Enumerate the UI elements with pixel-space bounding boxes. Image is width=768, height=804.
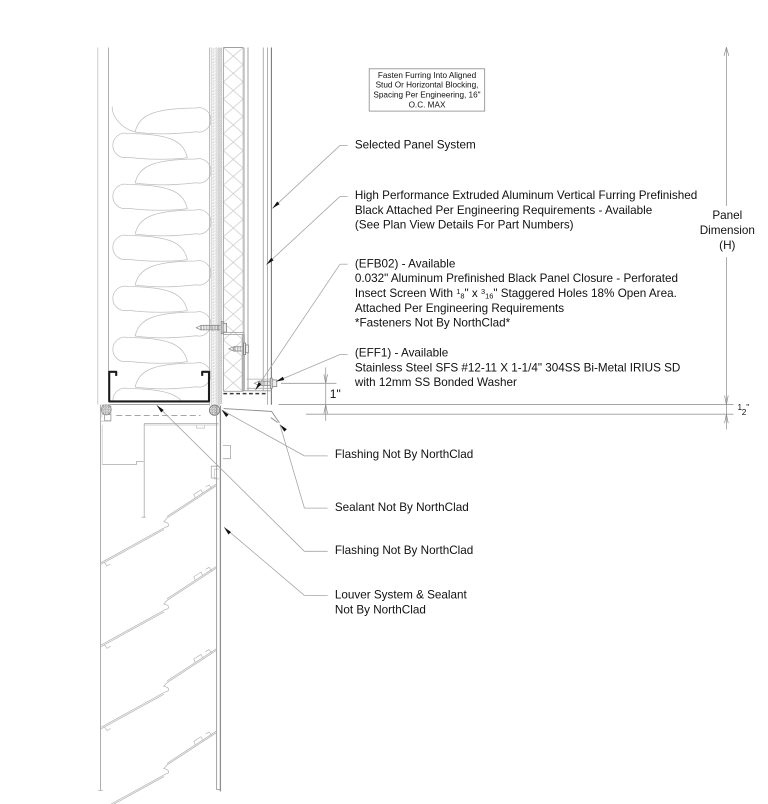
svg-text:(EFF1) - Available: (EFF1) - Available bbox=[355, 346, 448, 359]
svg-text:High Performance Extruded Alum: High Performance Extruded Aluminum Verti… bbox=[355, 189, 697, 202]
svg-text:*Fasteners Not By NorthClad*: *Fasteners Not By NorthClad* bbox=[355, 317, 511, 330]
svg-text:": " bbox=[746, 403, 749, 412]
svg-text:Stud Or Horizontal Blocking,: Stud Or Horizontal Blocking, bbox=[376, 81, 479, 90]
svg-text:Not By NorthClad: Not By NorthClad bbox=[335, 604, 426, 617]
svg-text:Flashing Not By NorthClad: Flashing Not By NorthClad bbox=[335, 544, 473, 557]
svg-text:Dimension: Dimension bbox=[700, 224, 755, 237]
svg-text:Stainless Steel SFS #12-11 X 1: Stainless Steel SFS #12-11 X 1-1/4" 304S… bbox=[355, 361, 681, 374]
svg-text:Selected Panel System: Selected Panel System bbox=[355, 138, 476, 151]
svg-text:Attached Per Engineering Requi: Attached Per Engineering Requirements bbox=[355, 302, 564, 315]
svg-text:Fasten Furring Into Aligned: Fasten Furring Into Aligned bbox=[378, 71, 477, 80]
svg-text:(EFB02) - Available: (EFB02) - Available bbox=[355, 257, 455, 270]
svg-text:Louver System & Sealant: Louver System & Sealant bbox=[335, 589, 468, 602]
svg-text:(H): (H) bbox=[719, 239, 735, 252]
svg-text:with 12mm SS Bonded Washer: with 12mm SS Bonded Washer bbox=[354, 376, 517, 389]
svg-text:0.032" Aluminum Prefinished Bl: 0.032" Aluminum Prefinished Black Panel … bbox=[355, 272, 678, 285]
svg-text:Black Attached Per Engineering: Black Attached Per Engineering Requireme… bbox=[355, 204, 652, 217]
svg-text:1": 1" bbox=[330, 387, 341, 401]
svg-text:Panel: Panel bbox=[712, 209, 742, 222]
svg-text:O.C. MAX: O.C. MAX bbox=[409, 101, 446, 110]
svg-text:Insect Screen With 18" x 316": Insect Screen With 18" x 316" Staggered … bbox=[355, 287, 677, 301]
svg-text:Flashing Not By NorthClad: Flashing Not By NorthClad bbox=[335, 448, 473, 461]
svg-text:Spacing Per Engineering, 16": Spacing Per Engineering, 16" bbox=[373, 91, 480, 100]
svg-text:Sealant Not By NorthClad: Sealant Not By NorthClad bbox=[335, 501, 469, 514]
svg-text:(See Plan View Details For Par: (See Plan View Details For Part Numbers) bbox=[355, 219, 574, 232]
